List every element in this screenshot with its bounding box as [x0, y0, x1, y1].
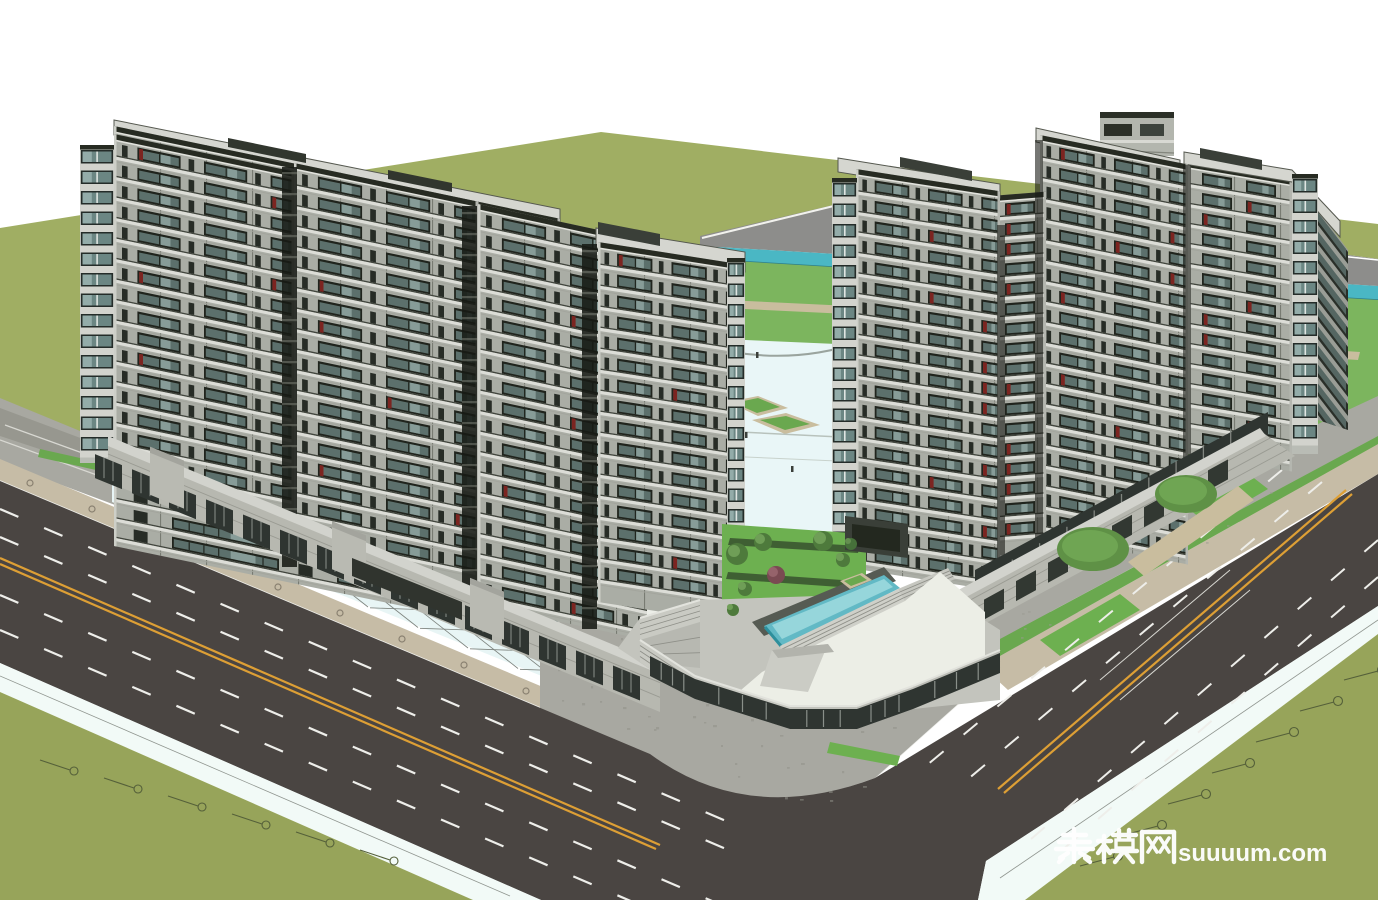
- svg-text:suuuum.com: suuuum.com: [1178, 840, 1327, 867]
